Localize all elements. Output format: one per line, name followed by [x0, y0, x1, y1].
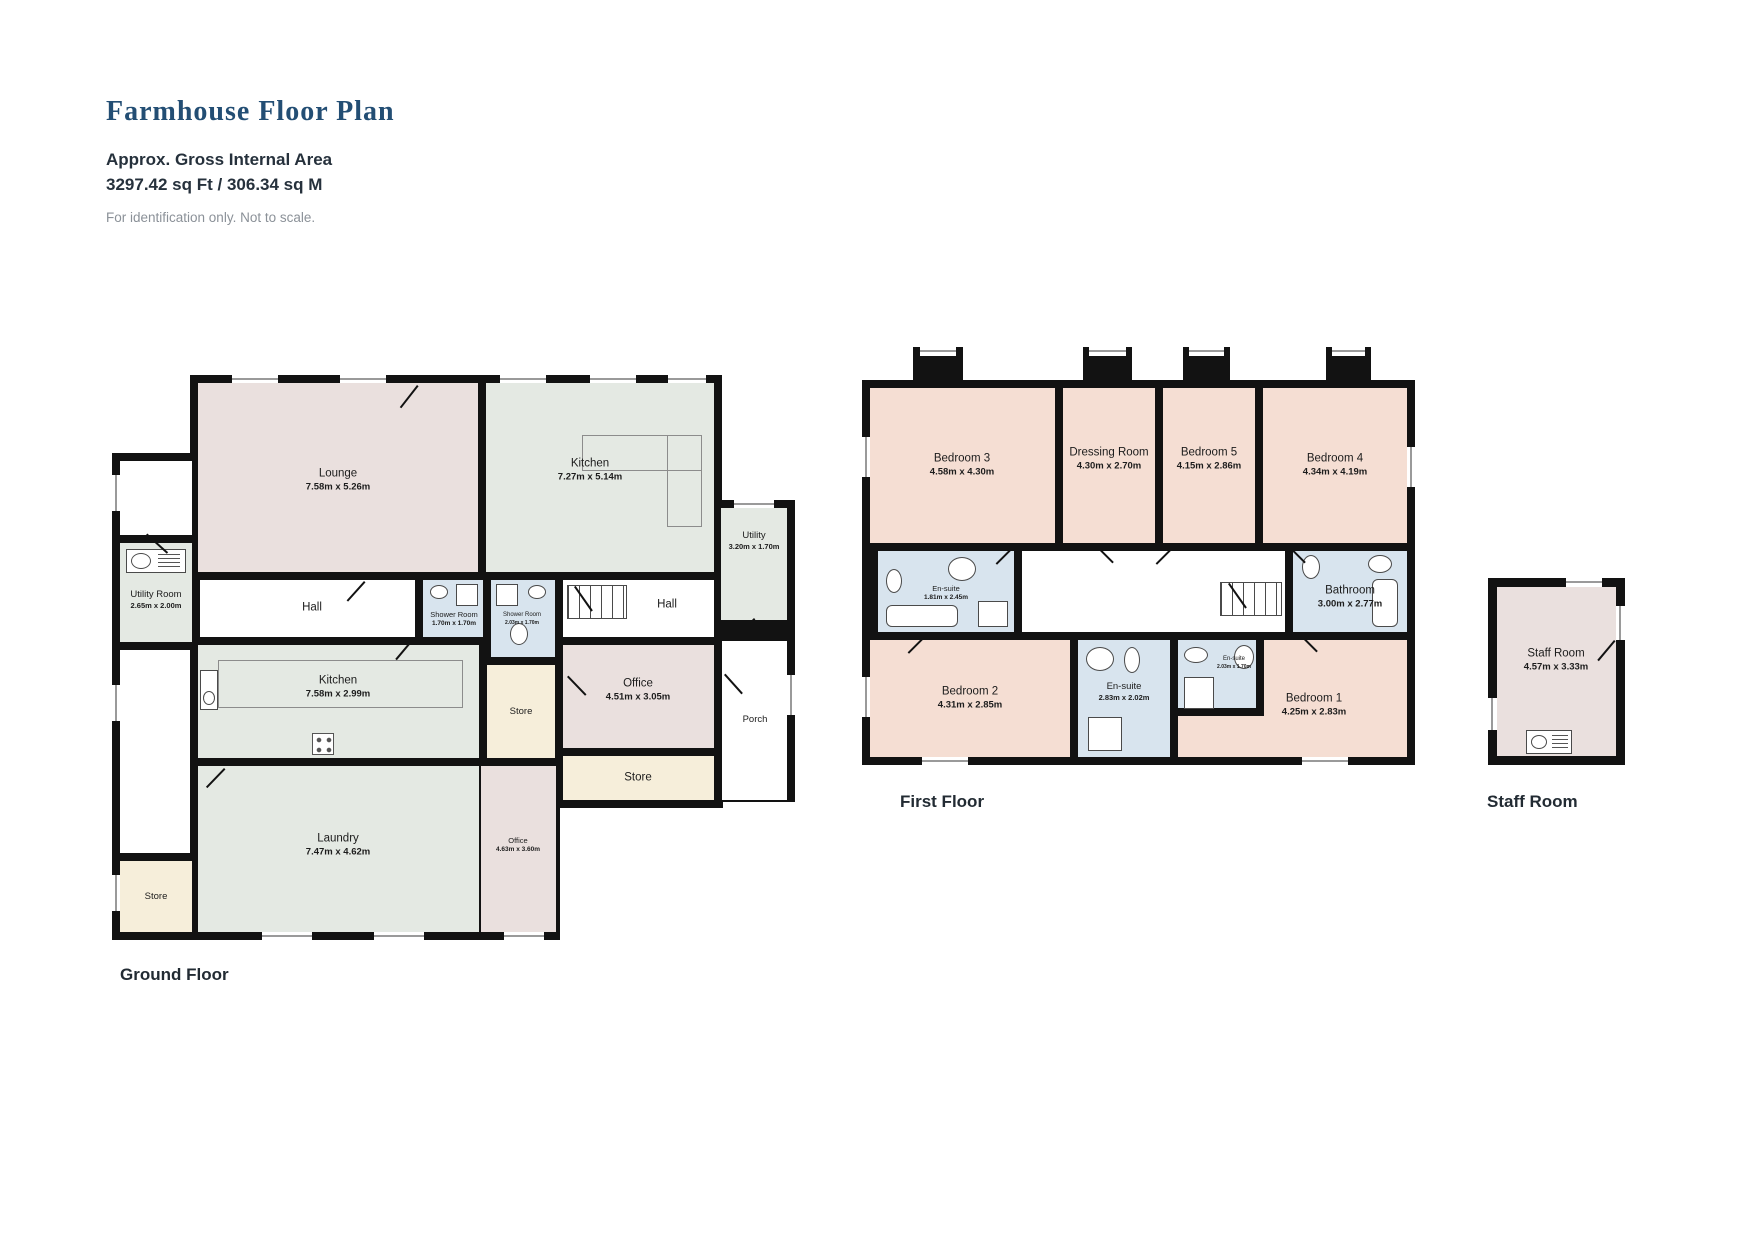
- room-label-bathroom: Bathroom 3.00m x 2.77m: [1318, 583, 1382, 610]
- room-label-store-left: Store: [145, 891, 168, 903]
- toilet-icon: [430, 585, 448, 599]
- window: [590, 375, 636, 383]
- disclaimer-note: For identification only. Not to scale.: [106, 210, 315, 225]
- first-floor-caption: First Floor: [900, 792, 984, 812]
- ground-floor-caption: Ground Floor: [120, 965, 229, 985]
- window: [734, 500, 774, 508]
- sink-bowl-icon: [131, 553, 151, 569]
- window: [1089, 347, 1126, 356]
- window: [862, 437, 870, 477]
- toilet-icon: [1184, 647, 1208, 663]
- window: [1302, 757, 1348, 765]
- window: [500, 375, 546, 383]
- sink-bowl-icon: [1531, 735, 1547, 749]
- room-label-utility: Utility 3.20m x 1.70m: [729, 530, 780, 552]
- window: [922, 757, 968, 765]
- room-label-bedroom-2: Bedroom 2 4.31m x 2.85m: [938, 684, 1002, 711]
- window: [374, 932, 424, 940]
- room-side-hall: [120, 650, 190, 853]
- room-label-bedroom-4: Bedroom 4 4.34m x 4.19m: [1303, 451, 1367, 478]
- kitchen-counter-outline: [667, 435, 702, 527]
- area-heading: Approx. Gross Internal Area: [106, 150, 332, 170]
- room-label-en-suite-1: En-suite 1.81m x 2.45m: [924, 584, 968, 602]
- shower-tray-icon: [496, 584, 518, 606]
- room-label-bedroom-5: Bedroom 5 4.15m x 2.86m: [1177, 445, 1241, 472]
- staff-room-caption: Staff Room: [1487, 792, 1578, 812]
- room-label-kitchen-2: Kitchen 7.58m x 2.99m: [306, 673, 370, 700]
- room-label-hall-rear: Hall: [657, 598, 677, 613]
- sink-icon: [1086, 647, 1114, 671]
- window: [1488, 698, 1497, 730]
- toilet-icon: [1124, 647, 1140, 673]
- window: [112, 875, 120, 911]
- toilet-icon: [1302, 555, 1320, 579]
- window: [920, 347, 956, 356]
- window: [1407, 447, 1415, 487]
- room-label-store-mid: Store: [510, 706, 533, 718]
- room-label-office-2: Office 4.63m x 3.60m: [496, 836, 540, 854]
- window: [1189, 347, 1224, 356]
- drainer-icon: [158, 554, 180, 568]
- page-title: Farmhouse Floor Plan: [106, 96, 395, 128]
- room-label-staff-room: Staff Room 4.57m x 3.33m: [1524, 646, 1588, 673]
- room-label-en-suite-2: En-suite 2.83m x 2.02m: [1099, 681, 1150, 703]
- toilet-icon: [510, 623, 528, 645]
- room-label-office-1: Office 4.51m x 3.05m: [606, 676, 670, 703]
- shower-tray-icon: [1184, 677, 1214, 709]
- window: [232, 375, 278, 383]
- window: [787, 675, 795, 715]
- window: [340, 375, 386, 383]
- hob-icon: [312, 733, 334, 755]
- shower-tray-icon: [978, 601, 1008, 627]
- window: [1566, 578, 1602, 587]
- room-label-kitchen: Kitchen 7.27m x 5.14m: [558, 456, 622, 483]
- room-utility: [721, 508, 787, 620]
- room-label-laundry: Laundry 7.47m x 4.62m: [306, 831, 370, 858]
- ground-floor-plan: Lounge 7.58m x 5.26m Kitchen 7.27m x 5.1…: [112, 375, 795, 940]
- room-label-porch: Porch: [743, 714, 768, 726]
- shower-tray-icon: [1088, 717, 1122, 751]
- toilet-icon: [886, 569, 902, 593]
- room-label-shower-room-1: Shower Room 1.70m x 1.70m: [430, 610, 478, 628]
- room-label-bedroom-1: Bedroom 1 4.25m x 2.83m: [1282, 691, 1346, 718]
- area-value: 3297.42 sq Ft / 306.34 sq M: [106, 175, 322, 195]
- window: [1332, 347, 1365, 356]
- sink-icon: [948, 557, 976, 581]
- room-label-hall-front: Hall: [302, 601, 322, 616]
- room-label-shower-room-2: Shower Room 2.03m x 1.70m: [503, 612, 541, 626]
- sink-icon: [528, 585, 546, 599]
- room-label-lounge: Lounge 7.58m x 5.26m: [306, 466, 370, 493]
- window: [112, 475, 120, 511]
- window: [262, 932, 312, 940]
- sink-bowl-icon: [203, 691, 215, 705]
- drainer-icon: [1552, 735, 1568, 749]
- bath-icon: [886, 605, 958, 627]
- staff-room-plan: Staff Room 4.57m x 3.33m: [1488, 578, 1625, 765]
- door-gap: [1616, 606, 1625, 640]
- first-floor-plan: Bedroom 3 4.58m x 4.30m Dressing Room 4.…: [862, 347, 1419, 772]
- room-label-utility-room: Utility Room 2.65m x 2.00m: [130, 589, 181, 611]
- window: [112, 685, 120, 721]
- room-label-en-suite-3: En-suite 2.03m x 1.70m: [1217, 656, 1251, 670]
- window: [668, 375, 706, 383]
- window: [504, 932, 544, 940]
- sink-icon: [1368, 555, 1392, 573]
- room-label-bedroom-3: Bedroom 3 4.58m x 4.30m: [930, 451, 994, 478]
- room-label-store-right: Store: [624, 771, 652, 786]
- room-label-dressing-room: Dressing Room 4.30m x 2.70m: [1069, 445, 1148, 472]
- shower-tray-icon: [456, 584, 478, 606]
- room-entry: [120, 461, 192, 535]
- window: [862, 677, 870, 717]
